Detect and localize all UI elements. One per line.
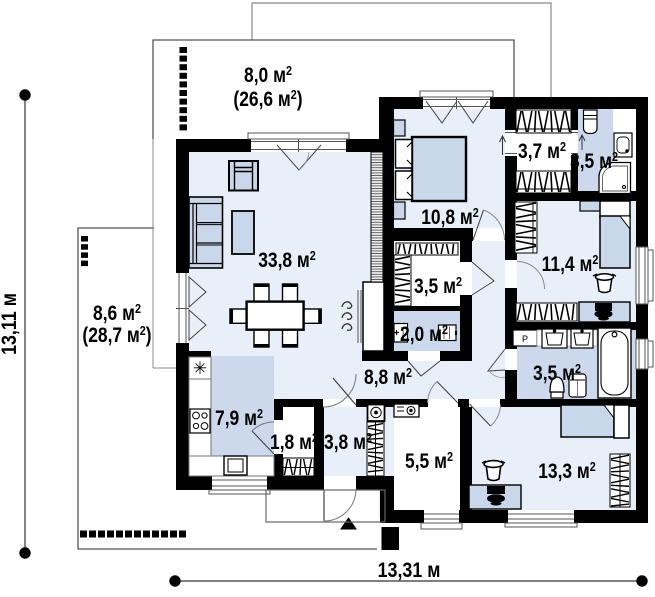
- svg-text:2,0 м2: 2,0 м2: [400, 322, 448, 346]
- svg-text:8,8 м2: 8,8 м2: [364, 365, 412, 389]
- svg-text:10,8 м2: 10,8 м2: [421, 205, 479, 229]
- svg-text:1,8 м2: 1,8 м2: [270, 430, 318, 454]
- svg-text:7,9 м2: 7,9 м2: [215, 406, 263, 430]
- svg-text:3,7 м2: 3,7 м2: [518, 139, 566, 163]
- svg-text:11,4 м2: 11,4 м2: [542, 252, 599, 276]
- svg-text:13,3 м2: 13,3 м2: [538, 459, 596, 483]
- svg-text:5,5 м2: 5,5 м2: [405, 449, 453, 473]
- svg-text:P: P: [522, 334, 528, 344]
- svg-text:8,0 м2: 8,0 м2: [244, 63, 292, 87]
- svg-text:3,5 м2: 3,5 м2: [533, 361, 581, 385]
- svg-text:13,11 м: 13,11 м: [0, 293, 21, 355]
- svg-text:✳: ✳: [193, 359, 207, 378]
- svg-text:3,8 м2: 3,8 м2: [324, 430, 372, 454]
- svg-text:13,31 м: 13,31 м: [378, 559, 441, 583]
- svg-text:3,5 м2: 3,5 м2: [414, 274, 462, 298]
- svg-text:8,6 м2: 8,6 м2: [93, 301, 141, 325]
- svg-text:33,8 м2: 33,8 м2: [258, 248, 316, 272]
- svg-text:3,5 м2: 3,5 м2: [570, 149, 618, 173]
